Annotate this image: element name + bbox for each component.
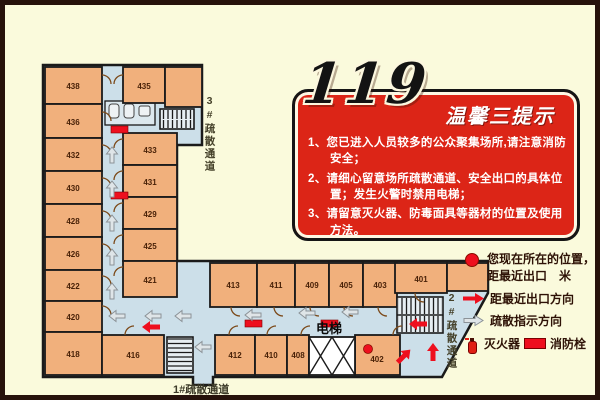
exit3-label: 3#疏散通道 — [204, 95, 215, 173]
room-label: 426 — [66, 250, 80, 259]
elevator-label: 电梯 — [316, 321, 342, 336]
room-label: 436 — [66, 118, 80, 127]
room-label: 401 — [414, 275, 428, 284]
room-label: 412 — [228, 351, 242, 360]
room-label: 428 — [66, 217, 80, 226]
tip-1: 1、您已进入人员较多的公众聚集场所,请注意消防安全； — [308, 135, 570, 168]
room-label: 405 — [339, 281, 353, 290]
elevator-shaft — [309, 337, 355, 375]
room-label: 432 — [66, 151, 80, 160]
tip-2: 2、请细心留意场所疏散通道、安全出口的具体位置；发生火警时禁用电梯； — [308, 171, 570, 204]
washroom-area — [105, 101, 155, 125]
legend-equipment-row: 灭火器消防栓 — [463, 336, 600, 353]
big-119-number: 119 — [300, 51, 433, 117]
legend-exit-direction-row: 距最近出口方向 — [463, 291, 600, 308]
legend-evac-direction-row: 疏散指示方向 — [463, 313, 600, 330]
current-location-dot — [364, 345, 373, 354]
room-label: 430 — [66, 184, 80, 193]
room-label: 403 — [373, 281, 387, 290]
room-label: 433 — [143, 146, 157, 155]
room-label: 438 — [66, 82, 80, 91]
hydrant-icon — [524, 338, 546, 349]
room-label: 418 — [66, 350, 80, 359]
notice-tips: 1、您已进入人员较多的公众聚集场所,请注意消防安全； 2、请细心留意场所疏散通道… — [308, 132, 570, 242]
legend-location-row: 您现在所在的位置， 距最近出口 米 — [463, 251, 600, 285]
legend-location-line1: 您现在所在的位置， — [487, 252, 595, 266]
legend-location-line2: 距最近出口 米 — [487, 269, 571, 283]
room-label: 425 — [143, 242, 157, 251]
room-label: 410 — [264, 351, 278, 360]
room — [165, 67, 202, 107]
hydrant-icon — [245, 320, 262, 327]
staircase-3 — [160, 109, 194, 129]
evac-arrow-icon — [463, 314, 485, 327]
extinguisher-icon — [465, 336, 478, 352]
exit1-label: 1#疏散通道 — [173, 382, 229, 396]
room-label: 420 — [66, 313, 80, 322]
room-label: 402 — [370, 355, 384, 364]
legend-extinguisher-label: 灭火器 — [484, 337, 520, 351]
room-label: 411 — [270, 281, 283, 290]
room-label: 413 — [226, 281, 240, 290]
evacuation-poster: 438 436 432 430 428 426 422 420 418 435 … — [0, 0, 600, 400]
room-label: 408 — [291, 351, 305, 360]
room-label: 422 — [66, 282, 80, 291]
notice-title: 温馨三提示 — [445, 100, 555, 129]
staircase-1 — [167, 337, 193, 373]
exit2-label: 2#疏散通道 — [446, 292, 457, 370]
legend: 您现在所在的位置， 距最近出口 米 距最近出口方向 疏散指示方向 灭火器消防栓 — [463, 251, 600, 359]
room-label: 431 — [143, 178, 157, 187]
room-label: 429 — [143, 210, 157, 219]
legend-evac-direction-label: 疏散指示方向 — [490, 313, 562, 330]
current-location-icon — [465, 253, 479, 267]
room-label: 435 — [137, 82, 151, 91]
room-label: 421 — [143, 276, 157, 285]
tip-3: 3、请留意灭火器、防毒面具等器材的位置及使用方法。 — [308, 206, 570, 239]
legend-hydrant-label: 消防栓 — [550, 337, 586, 351]
hydrant-icon — [111, 126, 128, 133]
room-label: 409 — [305, 281, 319, 290]
exit-arrow-icon — [463, 292, 485, 305]
staircase-2 — [397, 297, 443, 333]
room-label: 416 — [126, 351, 140, 360]
legend-exit-direction-label: 距最近出口方向 — [490, 291, 574, 308]
